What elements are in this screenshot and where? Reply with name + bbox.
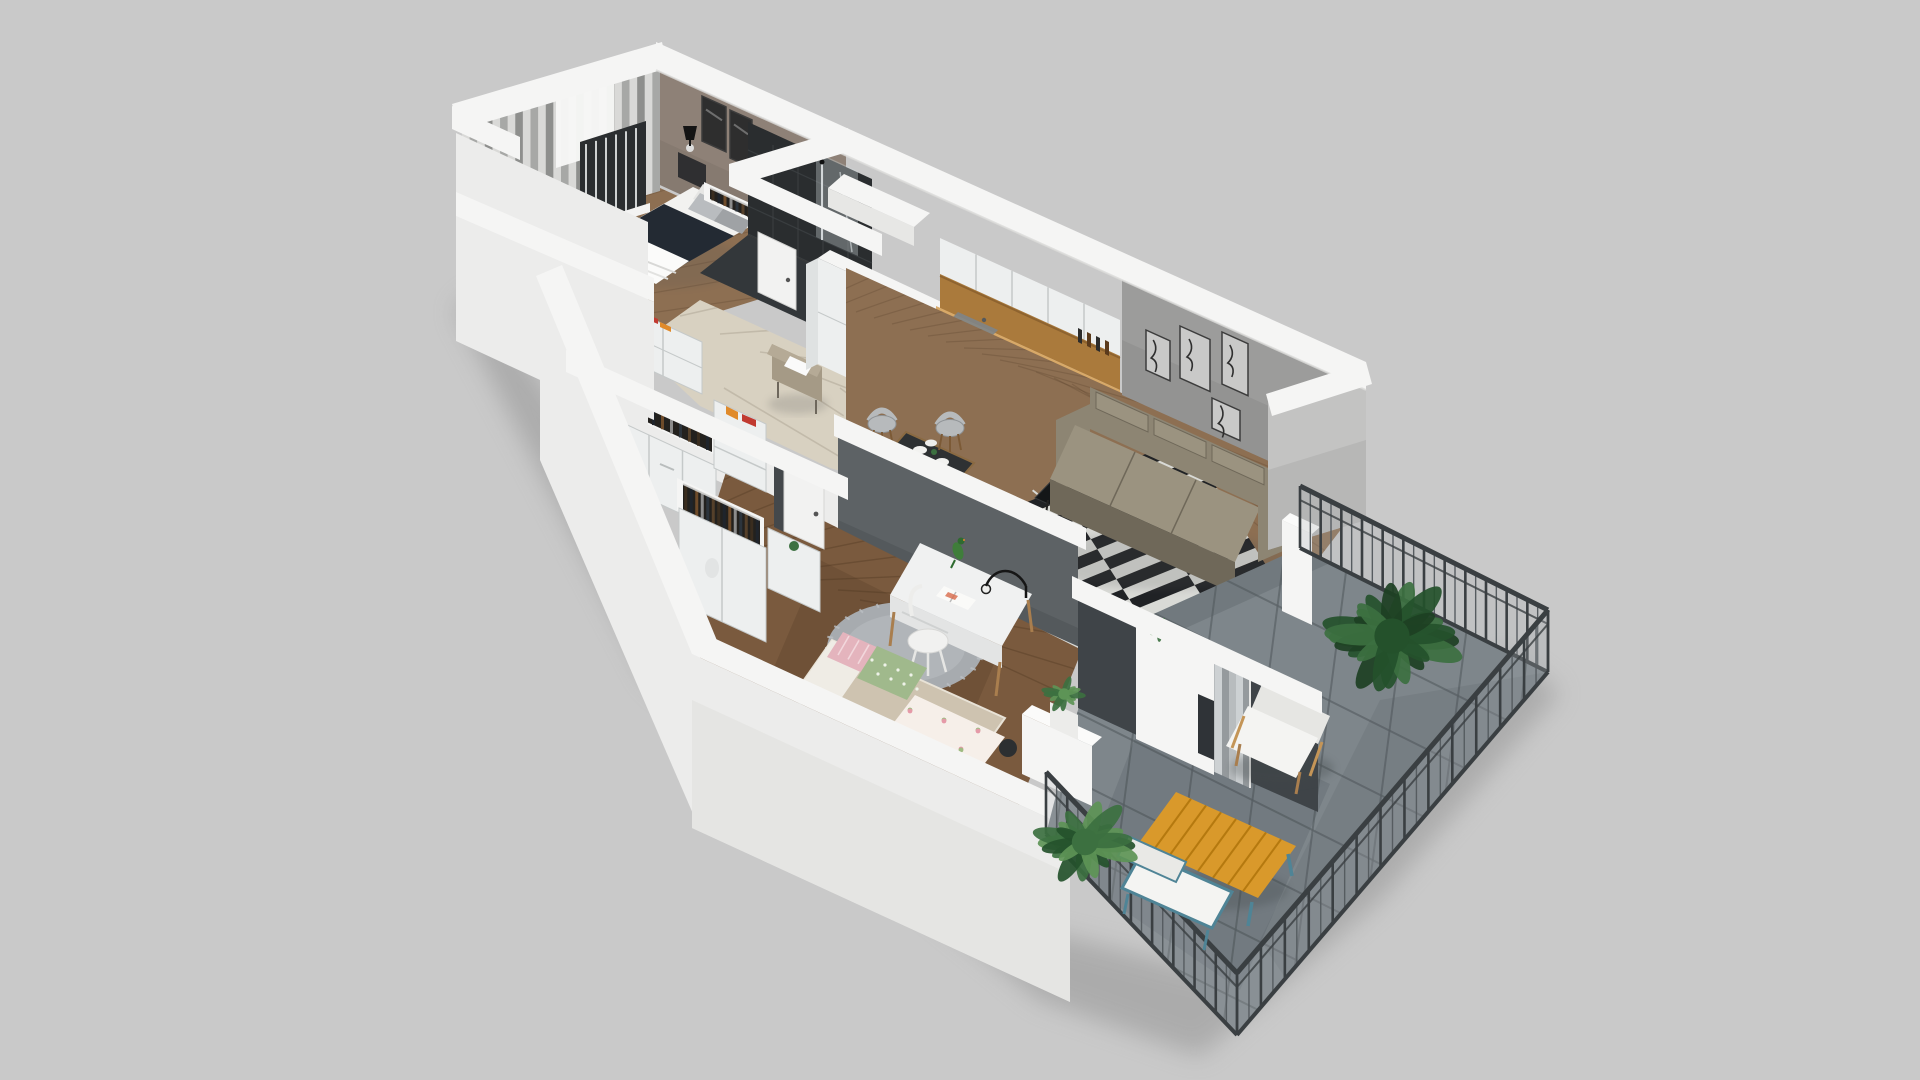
- apartment-3d-render: [0, 0, 1920, 1080]
- dining-chair: [936, 415, 964, 453]
- floorplan-page: [0, 0, 1920, 1080]
